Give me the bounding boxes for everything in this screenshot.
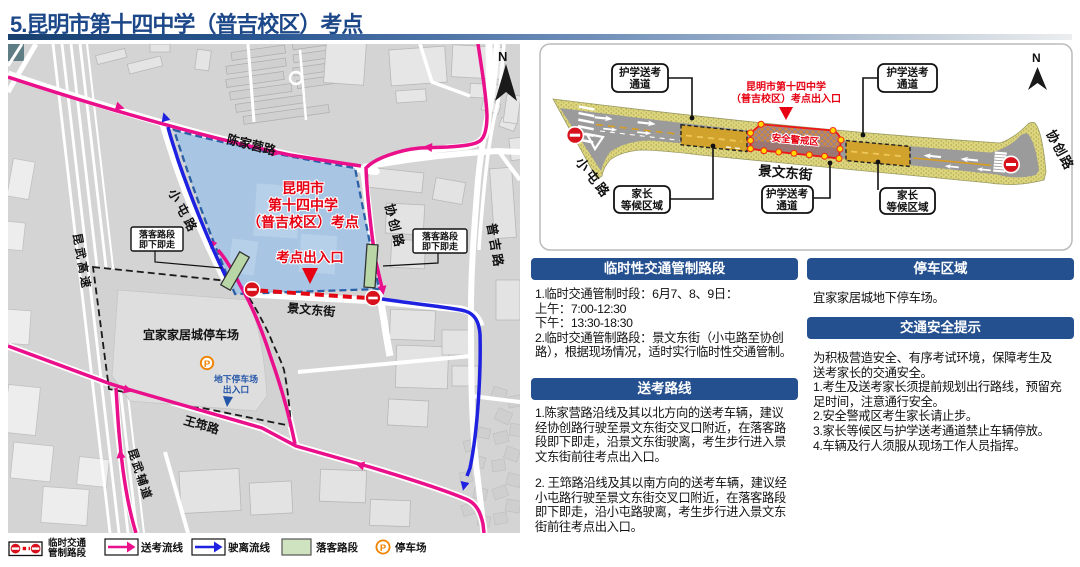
svg-text:第十四中学: 第十四中学: [268, 197, 338, 213]
svg-text:即下即走: 即下即走: [422, 241, 458, 252]
svg-text:通道: 通道: [897, 78, 918, 91]
svg-text:宜家家居城停车场: 宜家家居城停车场: [143, 327, 239, 342]
svg-text:（普吉校区）考点出入口: （普吉校区）考点出入口: [731, 92, 841, 105]
svg-text:送考流线: 送考流线: [140, 541, 183, 554]
svg-text:护学送考: 护学送考: [887, 66, 929, 79]
svg-text:护学送考: 护学送考: [619, 66, 661, 79]
svg-text:出入口: 出入口: [223, 384, 249, 395]
svg-text:P: P: [380, 543, 387, 554]
svg-text:驶离流线: 驶离流线: [228, 541, 270, 554]
svg-text:昆明市: 昆明市: [282, 180, 324, 196]
svg-text:家长: 家长: [632, 187, 653, 200]
svg-text:落客路段: 落客路段: [316, 541, 358, 554]
svg-text:N: N: [1032, 51, 1041, 65]
svg-text:管制路段: 管制路段: [48, 547, 87, 559]
svg-text:通道: 通道: [777, 199, 798, 212]
svg-text:（普吉校区）考点: （普吉校区）考点: [247, 214, 359, 230]
svg-text:等候区域: 等候区域: [620, 199, 663, 212]
svg-text:地下停车场: 地下停车场: [214, 373, 258, 384]
svg-text:停车场: 停车场: [395, 541, 427, 554]
svg-text:家长: 家长: [897, 189, 918, 202]
svg-text:P: P: [204, 359, 211, 370]
svg-text:落客路段: 落客路段: [422, 231, 459, 242]
svg-text:N: N: [498, 49, 507, 64]
svg-text:昆明市第十四中学: 昆明市第十四中学: [746, 80, 826, 93]
svg-text:等候区域: 等候区域: [886, 201, 929, 214]
svg-text:护学送考: 护学送考: [766, 187, 808, 200]
svg-text:即下即走: 即下即走: [139, 239, 175, 250]
svg-text:考点出入口: 考点出入口: [276, 249, 344, 265]
svg-text:通道: 通道: [630, 78, 651, 91]
svg-text:落客路段: 落客路段: [139, 229, 176, 240]
